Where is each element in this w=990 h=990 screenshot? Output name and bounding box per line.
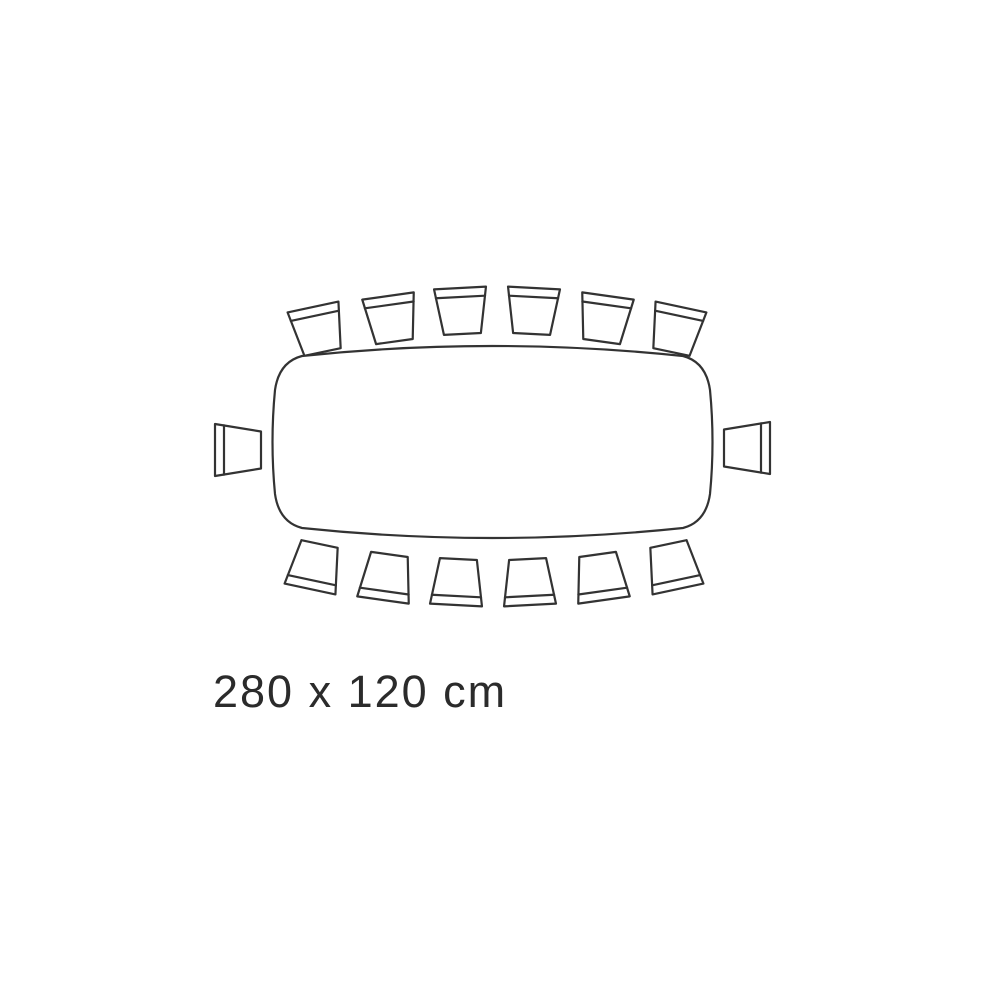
chair-bottom-4-icon — [502, 558, 556, 607]
chair-bottom-5-icon — [572, 551, 630, 604]
table-seating-diagram — [0, 0, 990, 990]
table-top — [273, 346, 713, 538]
chair-top-1-icon — [288, 302, 348, 358]
dimension-label: 280 x 120 cm — [213, 666, 507, 718]
chair-bottom-6-icon — [643, 539, 703, 595]
chair-top-6-icon — [646, 302, 706, 358]
chair-bottom-3-icon — [430, 558, 484, 607]
chair-left-end-icon — [215, 424, 261, 476]
chair-top-4-icon — [506, 287, 560, 336]
diagram-canvas: 280 x 120 cm — [0, 0, 990, 990]
chair-top-3-icon — [434, 287, 488, 336]
chair-bottom-1-icon — [285, 539, 345, 595]
chair-bottom-2-icon — [357, 551, 415, 604]
chair-right-end-icon — [724, 422, 770, 474]
chair-top-2-icon — [362, 292, 420, 345]
chair-top-5-icon — [576, 292, 634, 345]
